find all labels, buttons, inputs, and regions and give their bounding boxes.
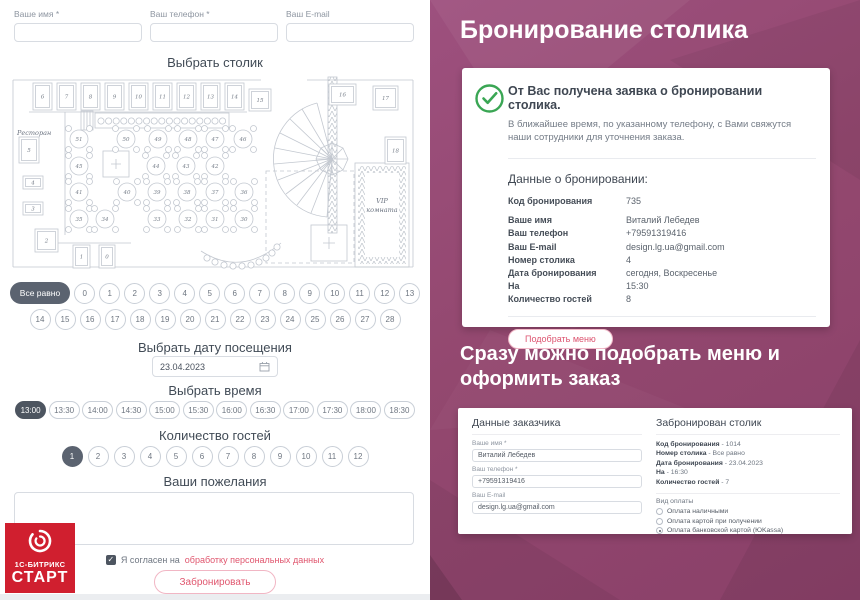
plan-booth-12[interactable]: 12 — [177, 83, 196, 110]
customer-data-title: Данные заказчика — [472, 417, 642, 435]
plan-table-40[interactable]: 40 — [114, 179, 141, 206]
time-button-13:00[interactable]: 13:00 — [15, 401, 46, 419]
mini-field-input-0[interactable]: Виталий Лебедев — [472, 449, 642, 462]
svg-text:38: 38 — [184, 190, 191, 196]
confirmation-headline: От Вас получена заявка о бронировании ст… — [508, 84, 816, 112]
divider — [656, 493, 840, 494]
booked-row-label: Номер столика — [656, 450, 707, 457]
time-row: 13:0013:3014:0014:3015:0015:3016:0016:30… — [0, 401, 430, 419]
choose-date-title: Выбрать дату посещения — [0, 340, 430, 355]
mini-field-label: Ваш телефон * — [472, 466, 642, 473]
contact-fields-row: Ваше имя *Ваш телефон *Ваш E-mail — [14, 9, 414, 42]
svg-text:51: 51 — [76, 137, 83, 143]
booked-row-label: Количество гостей — [656, 479, 719, 486]
table-button-28[interactable]: 28 — [380, 309, 401, 330]
booked-table-column: Забронирован столик Код бронирования - 1… — [656, 417, 840, 537]
svg-text:45: 45 — [75, 164, 83, 170]
booking-row: Количество гостей8 — [508, 293, 816, 306]
booking-data-rows: Код бронирования735Ваше имяВиталий Лебед… — [508, 195, 816, 307]
booking-row: Ваш E-maildesign.lg.ua@gmail.com — [508, 241, 816, 254]
time-button-15:00[interactable]: 15:00 — [149, 401, 180, 419]
plan-booth-4[interactable]: 4 — [23, 176, 43, 189]
bitrix-logo: 1С-БИТРИКС СТАРТ — [5, 523, 75, 593]
table-button-1[interactable]: 1 — [99, 283, 120, 304]
consent-link[interactable]: обработку персональных данных — [185, 555, 324, 565]
contact-field-label: Ваш телефон * — [150, 9, 278, 19]
plan-table-35[interactable]: 35 — [66, 206, 93, 233]
screenshot-root: Ваше имя *Ваш телефон *Ваш E-mail Выбрат… — [0, 0, 860, 600]
guest-count-row: 123456789101112 — [0, 446, 430, 467]
plan-vip-label-1: VIP — [376, 197, 388, 205]
confirmation-subtext: В ближайшее время, по указанному телефон… — [508, 119, 816, 144]
logo-line2: СТАРТ — [5, 569, 75, 587]
consent-text: Я согласен на — [121, 555, 180, 565]
booking-row-value: +79591319416 — [626, 227, 686, 240]
svg-text:2: 2 — [44, 239, 49, 245]
plan-booth-6[interactable]: 6 — [33, 83, 52, 110]
svg-text:39: 39 — [154, 190, 161, 196]
booking-row-value: Виталий Лебедев — [626, 214, 700, 227]
svg-text:40: 40 — [123, 190, 131, 196]
plan-table-44[interactable]: 44 — [143, 153, 170, 180]
order-preview-card: Данные заказчика Ваше имя *Виталий Лебед… — [458, 408, 852, 534]
svg-text:7: 7 — [65, 95, 69, 101]
guest-button-5[interactable]: 5 — [166, 446, 187, 467]
table-button-4[interactable]: 4 — [174, 283, 195, 304]
table-button-3[interactable]: 3 — [149, 283, 170, 304]
contact-field-input-1[interactable] — [150, 23, 278, 42]
plan-booth-1[interactable]: 1 — [73, 245, 90, 268]
svg-text:13: 13 — [207, 95, 214, 101]
table-button-9[interactable]: 9 — [299, 283, 320, 304]
plan-round-tables[interactable]: 5150494847464544434241403938373635343332… — [66, 126, 258, 233]
booked-row-label: Дата бронирования — [656, 460, 723, 467]
booking-form-panel: Ваше имя *Ваш телефон *Ваш E-mail Выбрат… — [0, 0, 430, 600]
booking-row-label: Ваше имя — [508, 214, 626, 227]
bitrix-b-icon — [27, 528, 53, 554]
booked-row: Код бронирования - 1014 — [656, 440, 840, 449]
svg-text:8: 8 — [89, 95, 93, 101]
contact-field-input-0[interactable] — [14, 23, 142, 42]
svg-text:32: 32 — [185, 217, 192, 223]
guest-button-7[interactable]: 7 — [218, 446, 239, 467]
customer-data-column: Данные заказчика Ваше имя *Виталий Лебед… — [472, 417, 642, 514]
booked-row: На - 16:30 — [656, 468, 840, 477]
booking-data-title: Данные о бронировании: — [508, 172, 816, 186]
guest-button-2[interactable]: 2 — [88, 446, 109, 467]
divider — [508, 158, 816, 159]
booking-row-label: На — [508, 280, 626, 293]
table-button-22[interactable]: 22 — [230, 309, 251, 330]
plan-table-47[interactable]: 47 — [202, 126, 229, 153]
plan-table-39[interactable]: 39 — [144, 179, 171, 206]
svg-text:1: 1 — [80, 255, 84, 261]
svg-text:33: 33 — [154, 217, 161, 223]
contact-field-label: Ваш E-mail — [286, 9, 414, 19]
guest-button-6[interactable]: 6 — [192, 446, 213, 467]
booking-row-label: Номер столика — [508, 254, 626, 267]
svg-text:50: 50 — [123, 137, 130, 143]
booking-row: Дата бронированиясегодня, Воскресенье — [508, 267, 816, 280]
plan-booth-17[interactable]: 17 — [373, 86, 398, 110]
guest-button-3[interactable]: 3 — [114, 446, 135, 467]
table-button-0[interactable]: 0 — [74, 283, 95, 304]
table-number-row-1: Все равно012345678910111213 — [0, 282, 430, 304]
payment-option-label: Оплата наличными — [667, 508, 728, 515]
table-button-13[interactable]: 13 — [399, 283, 420, 304]
promo-title: Бронирование столика — [460, 16, 748, 45]
date-wrap: 23.04.2023 — [0, 356, 430, 377]
booking-row-label: Ваш телефон — [508, 227, 626, 240]
svg-text:49: 49 — [154, 137, 162, 143]
plan-booth-10[interactable]: 10 — [129, 83, 148, 110]
svg-text:3: 3 — [31, 207, 35, 213]
plan-table-38[interactable]: 38 — [174, 179, 201, 206]
table-button-12[interactable]: 12 — [374, 283, 395, 304]
booked-row: Номер столика - Все равно — [656, 449, 840, 458]
payment-radio[interactable] — [656, 508, 663, 515]
mini-field-label: Ваше имя * — [472, 440, 642, 447]
booked-row: Дата бронирования - 23.04.2023 — [656, 459, 840, 468]
table-button-26[interactable]: 26 — [330, 309, 351, 330]
plan-booth-3[interactable]: 3 — [23, 202, 43, 215]
floor-plan[interactable]: 6789101112131415161718543210 51504948474… — [11, 75, 415, 272]
table-button-17[interactable]: 17 — [105, 309, 126, 330]
svg-text:44: 44 — [152, 164, 160, 170]
table-button-20[interactable]: 20 — [180, 309, 201, 330]
guest-button-9[interactable]: 9 — [270, 446, 291, 467]
payment-radio[interactable] — [656, 527, 663, 534]
booked-row-value: - 23.04.2023 — [723, 460, 763, 467]
svg-text:31: 31 — [212, 217, 219, 223]
table-button-8[interactable]: 8 — [274, 283, 295, 304]
time-button-18:30[interactable]: 18:30 — [384, 401, 415, 419]
plan-booth-5[interactable]: 5 — [19, 137, 39, 163]
date-value: 23.04.2023 — [160, 362, 205, 372]
contact-field-0: Ваше имя * — [14, 9, 142, 42]
table-button-18[interactable]: 18 — [130, 309, 151, 330]
booking-row: Код бронирования735 — [508, 195, 816, 208]
booking-row: На15:30 — [508, 280, 816, 293]
booked-row-label: На — [656, 469, 665, 476]
payment-options: Оплата наличнымиОплата картой при получе… — [656, 508, 840, 534]
time-button-17:30[interactable]: 17:30 — [317, 401, 348, 419]
calendar-icon — [259, 361, 270, 372]
plan-table-42[interactable]: 42 — [202, 153, 229, 180]
mini-field-label: Ваш E-mail — [472, 492, 642, 499]
booking-row-label: Ваш E-mail — [508, 241, 626, 254]
table-any-button[interactable]: Все равно — [10, 282, 70, 304]
guest-button-10[interactable]: 10 — [296, 446, 317, 467]
plan-table-32[interactable]: 32 — [175, 206, 202, 233]
plan-booth-9[interactable]: 9 — [105, 83, 124, 110]
svg-text:11: 11 — [159, 95, 166, 101]
contact-field-label: Ваше имя * — [14, 9, 142, 19]
plan-table-50[interactable]: 50 — [113, 126, 140, 153]
svg-text:5: 5 — [27, 148, 31, 154]
table-button-19[interactable]: 19 — [155, 309, 176, 330]
booking-row-value: design.lg.ua@gmail.com — [626, 241, 725, 254]
plan-table-46[interactable]: 46 — [230, 126, 257, 153]
plan-table-33[interactable]: 33 — [144, 206, 171, 233]
contact-field-2: Ваш E-mail — [286, 9, 414, 42]
plan-booth-15[interactable]: 15 — [249, 89, 271, 111]
plan-booth-13[interactable]: 13 — [201, 83, 220, 110]
booking-row: Ваш телефон+79591319416 — [508, 227, 816, 240]
plan-table-31[interactable]: 31 — [202, 206, 229, 233]
booked-row-value: - 1014 — [720, 441, 741, 448]
plan-table-43[interactable]: 43 — [173, 153, 200, 180]
svg-text:30: 30 — [241, 217, 248, 223]
table-button-23[interactable]: 23 — [255, 309, 276, 330]
booking-row: Номер столика4 — [508, 254, 816, 267]
booked-row-label: Код бронирования — [656, 441, 720, 448]
plan-table-41[interactable]: 41 — [66, 179, 93, 206]
svg-text:4: 4 — [30, 181, 35, 187]
plan-booth-11[interactable]: 11 — [153, 83, 172, 110]
table-button-21[interactable]: 21 — [205, 309, 226, 330]
svg-text:46: 46 — [239, 137, 247, 143]
guest-button-12[interactable]: 12 — [348, 446, 369, 467]
payment-option-label: Оплата картой при получении — [667, 518, 762, 525]
time-button-18:00[interactable]: 18:00 — [350, 401, 381, 419]
choose-table-title: Выбрать столик — [0, 55, 430, 70]
booking-row-value: 15:30 — [626, 280, 649, 293]
booking-row-value: 4 — [626, 254, 631, 267]
book-button[interactable]: Забронировать — [154, 570, 275, 594]
plan-booth-7[interactable]: 7 — [57, 83, 76, 110]
guest-button-11[interactable]: 11 — [322, 446, 343, 467]
success-check-icon — [474, 83, 505, 114]
svg-text:42: 42 — [211, 164, 219, 170]
plan-booth-14[interactable]: 14 — [225, 83, 244, 110]
plan-table-34[interactable]: 34 — [92, 206, 119, 233]
time-button-14:30[interactable]: 14:30 — [116, 401, 147, 419]
time-button-13:30[interactable]: 13:30 — [49, 401, 80, 419]
svg-text:16: 16 — [339, 93, 346, 99]
table-button-6[interactable]: 6 — [224, 283, 245, 304]
table-button-7[interactable]: 7 — [249, 283, 270, 304]
consent-checkbox[interactable] — [106, 555, 116, 565]
booked-row-value: - Все равно — [707, 450, 745, 457]
booked-rows: Код бронирования - 1014Номер столика - В… — [656, 440, 840, 487]
plan-table-45[interactable]: 45 — [66, 153, 93, 180]
time-button-17:00[interactable]: 17:00 — [283, 401, 314, 419]
booking-row-label: Количество гостей — [508, 293, 626, 306]
booking-row: Ваше имяВиталий Лебедев — [508, 214, 816, 227]
plan-booth-8[interactable]: 8 — [81, 83, 100, 110]
plan-table-30[interactable]: 30 — [231, 206, 258, 233]
plan-booth-18[interactable]: 18 — [385, 137, 406, 164]
table-button-16[interactable]: 16 — [80, 309, 101, 330]
table-button-11[interactable]: 11 — [349, 283, 370, 304]
table-number-row-2: 141516171819202122232425262728 — [0, 309, 430, 330]
contact-field-input-2[interactable] — [286, 23, 414, 42]
svg-text:37: 37 — [212, 190, 219, 196]
date-input[interactable]: 23.04.2023 — [152, 356, 278, 377]
booked-row-value: - 16:30 — [665, 469, 688, 476]
table-button-24[interactable]: 24 — [280, 309, 301, 330]
svg-text:17: 17 — [382, 96, 389, 102]
customer-fields: Ваше имя *Виталий ЛебедевВаш телефон *+7… — [472, 440, 642, 514]
contact-field-1: Ваш телефон * — [150, 9, 278, 42]
guest-button-8[interactable]: 8 — [244, 446, 265, 467]
svg-text:15: 15 — [257, 98, 264, 104]
booked-row-value: - 7 — [719, 479, 729, 486]
payment-option: Оплата наличными — [656, 508, 840, 515]
plan-table-48[interactable]: 48 — [175, 126, 202, 153]
payment-title: Вид оплаты — [656, 498, 840, 505]
wishes-title: Ваши пожелания — [0, 474, 430, 489]
table-button-5[interactable]: 5 — [199, 283, 220, 304]
logo-line1: 1С-БИТРИКС — [5, 560, 75, 569]
payment-option-label: Оплата банковской картой (ЮKassa) — [667, 527, 783, 534]
time-button-15:30[interactable]: 15:30 — [183, 401, 214, 419]
svg-text:10: 10 — [135, 95, 142, 101]
table-button-2[interactable]: 2 — [124, 283, 145, 304]
divider — [508, 316, 816, 317]
payment-option: Оплата картой при получении — [656, 518, 840, 525]
guest-button-1[interactable]: 1 — [62, 446, 83, 467]
table-button-10[interactable]: 10 — [324, 283, 345, 304]
svg-text:34: 34 — [102, 217, 109, 223]
promo-subtitle: Сразу можно подобрать меню и оформить за… — [460, 342, 805, 392]
svg-text:43: 43 — [182, 164, 190, 170]
payment-option: Оплата банковской картой (ЮKassa) — [656, 527, 840, 534]
mini-field-input-2[interactable]: design.lg.ua@gmail.com — [472, 501, 642, 514]
booking-row-value: сегодня, Воскресенье — [626, 267, 717, 280]
time-button-14:00[interactable]: 14:00 — [82, 401, 113, 419]
bottom-strip — [0, 594, 430, 600]
mini-field-input-1[interactable]: +79591319416 — [472, 475, 642, 488]
table-button-25[interactable]: 25 — [305, 309, 326, 330]
booking-row-value: 735 — [626, 195, 641, 208]
svg-text:18: 18 — [392, 149, 399, 155]
svg-text:0: 0 — [105, 255, 109, 261]
svg-text:36: 36 — [241, 190, 248, 196]
plan-table-36[interactable]: 36 — [231, 179, 258, 206]
time-button-16:00[interactable]: 16:00 — [216, 401, 247, 419]
svg-text:48: 48 — [184, 137, 192, 143]
booking-row-value: 8 — [626, 293, 631, 306]
svg-text:6: 6 — [41, 95, 45, 101]
plan-booth-0[interactable]: 0 — [99, 245, 115, 268]
svg-text:41: 41 — [75, 190, 83, 196]
confirmation-card: От Вас получена заявка о бронировании ст… — [462, 68, 830, 327]
guests-title: Количество гостей — [0, 428, 430, 443]
svg-text:47: 47 — [211, 137, 219, 143]
plan-restaurant-label: Ресторан — [16, 129, 51, 137]
plan-table-37[interactable]: 37 — [202, 179, 229, 206]
guest-button-4[interactable]: 4 — [140, 446, 161, 467]
svg-text:12: 12 — [183, 95, 190, 101]
table-button-27[interactable]: 27 — [355, 309, 376, 330]
booked-row: Количество гостей - 7 — [656, 478, 840, 487]
booked-table-title: Забронирован столик — [656, 417, 840, 435]
promo-panel: Бронирование столика От Вас получена зая… — [430, 0, 860, 600]
plan-vip-label-2: комната — [366, 206, 398, 214]
plan-table-49[interactable]: 49 — [145, 126, 172, 153]
payment-radio[interactable] — [656, 518, 663, 525]
plan-booth-2[interactable]: 2 — [35, 229, 58, 252]
table-button-14[interactable]: 14 — [30, 309, 51, 330]
table-button-15[interactable]: 15 — [55, 309, 76, 330]
choose-time-title: Выбрать время — [0, 383, 430, 398]
plan-table-51[interactable]: 51 — [66, 126, 93, 153]
svg-text:14: 14 — [231, 95, 238, 101]
floor-plan-svg[interactable]: 6789101112131415161718543210 51504948474… — [11, 75, 415, 272]
booking-row-label: Дата бронирования — [508, 267, 626, 280]
booking-row-label: Код бронирования — [508, 195, 626, 208]
time-button-16:30[interactable]: 16:30 — [250, 401, 281, 419]
plan-booths[interactable]: 6789101112131415161718543210 — [19, 83, 406, 268]
svg-text:35: 35 — [76, 217, 83, 223]
svg-text:9: 9 — [113, 95, 117, 101]
plan-booth-16[interactable]: 16 — [329, 84, 356, 105]
